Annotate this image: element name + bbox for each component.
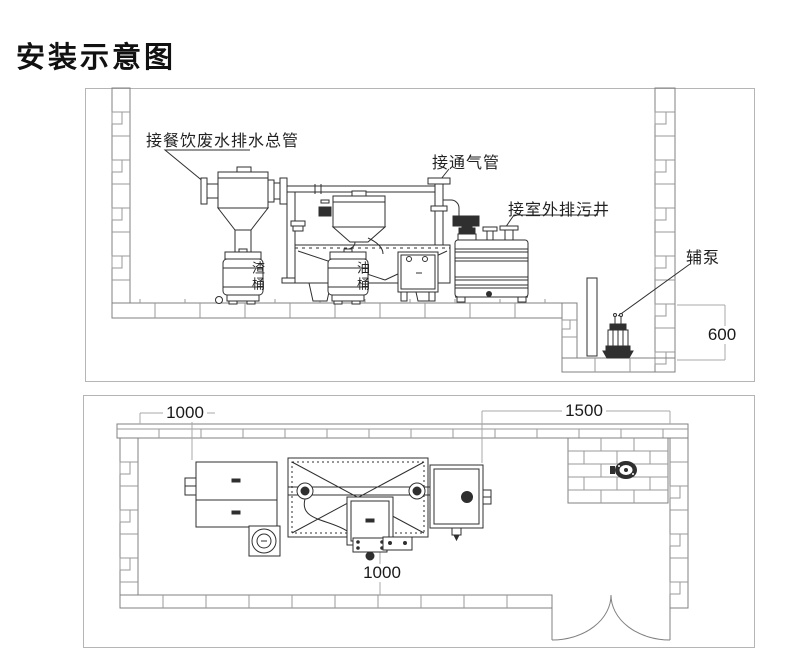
label-aux-pump: 辅泵 (686, 244, 720, 268)
pump-discharge-pipe (587, 278, 597, 356)
right-wall-plan (670, 438, 688, 608)
right-wall-section (655, 88, 675, 372)
label-inlet-pipe: 接餐饮废水排水总管 (146, 127, 299, 151)
label-vent-pipe: 接通气管 (432, 149, 500, 173)
label-oil-bucket: 油桶 (355, 261, 369, 293)
slag-separator-plan (185, 462, 280, 556)
left-wall-section (112, 88, 130, 303)
double-door (552, 595, 670, 640)
slag-separator (201, 167, 287, 252)
label-sewage-well: 接室外排污井 (508, 196, 610, 220)
bucket-wheel (216, 297, 223, 304)
installation-diagram: 安装示意图 (0, 0, 790, 657)
bottom-wall-plan (120, 595, 552, 608)
dim-left-clearance: 1000 (163, 404, 207, 422)
aux-pump-leader (618, 264, 690, 316)
page-title: 安装示意图 (16, 34, 176, 76)
clean-water-tank-plan (430, 465, 491, 540)
plan-view-panel (83, 395, 755, 648)
left-wall-plan (120, 438, 138, 595)
submersible-pump (587, 278, 633, 358)
dim-right-clearance: 1500 (562, 402, 606, 420)
clean-water-tank (455, 222, 528, 302)
top-wall-plan (117, 424, 688, 438)
label-slag-bucket: 渣桶 (250, 261, 264, 293)
dim-front-clearance: 1000 (360, 564, 404, 582)
equipment-plan-view (185, 458, 491, 560)
dim-pit-depth: 600 (701, 326, 743, 344)
